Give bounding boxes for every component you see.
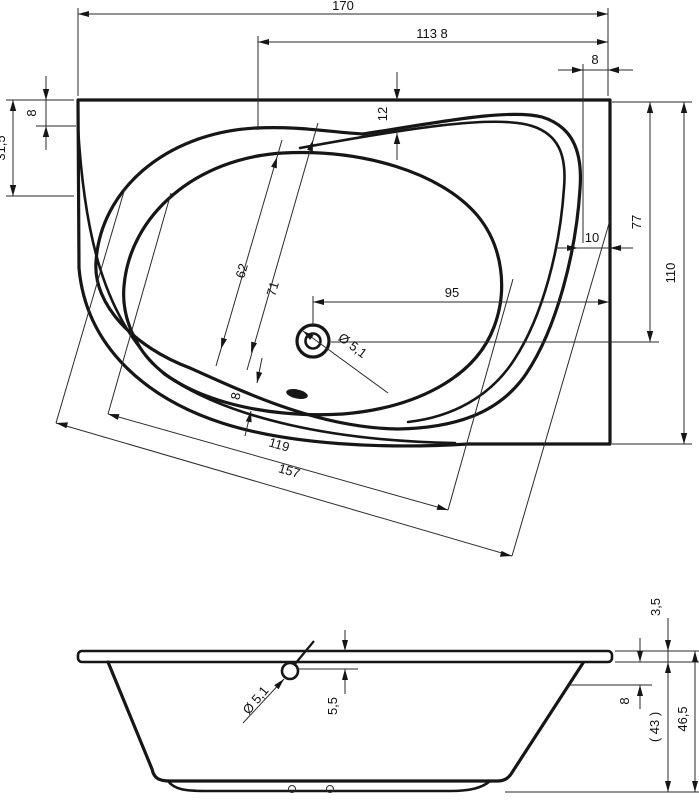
dim-8-top-right: 8: [558, 52, 633, 73]
dim-label-drain-side: Ø 5,1: [240, 683, 272, 717]
dim-5-5: 5,5: [325, 630, 348, 715]
dim-label-71: 71: [263, 280, 281, 298]
dim-label-12: 12: [375, 107, 390, 121]
dim-31-5: 31,5: [0, 100, 16, 196]
dim-110: 110: [663, 102, 687, 444]
dim-8-side: 8: [617, 638, 643, 709]
dim-label-113-8: 113 8: [416, 26, 448, 41]
top-view-extension-lines: [6, 8, 692, 556]
dim-113-8: 113 8: [258, 26, 608, 45]
dim-label-95: 95: [445, 285, 459, 300]
dim-3-5-and-43: 3,5 ( 43 ): [647, 598, 671, 792]
dim-label-3-5: 3,5: [648, 598, 663, 616]
drain-diameter-callout-side: Ø 5,1: [240, 679, 284, 723]
bathing-well-outer-edge: [96, 114, 581, 429]
dim-8-left: 8: [24, 76, 49, 150]
drain-outer-circle: [297, 325, 329, 357]
dim-label-8-side: 8: [617, 697, 632, 704]
drain-diameter-callout-top: Ø 5,1: [303, 330, 388, 393]
rim-flange: [78, 651, 612, 662]
tub-floor-oval: [124, 153, 502, 415]
dim-label-31-5: 31,5: [0, 135, 8, 160]
top-view: 170 113 8 8 8: [0, 0, 692, 557]
dim-77: 77: [629, 102, 653, 342]
dim-label-10: 10: [585, 230, 599, 245]
dim-label-8-mid: 8: [228, 391, 244, 401]
dim-10: 10: [556, 230, 633, 251]
dim-label-77: 77: [629, 215, 644, 229]
technical-drawing-canvas: 170 113 8 8 8: [0, 0, 699, 800]
dim-170: 170: [78, 0, 608, 17]
bathtub-drawing: 170 113 8 8 8: [0, 0, 699, 800]
dim-label-110: 110: [663, 263, 678, 284]
dim-label-170: 170: [332, 0, 354, 13]
dim-label-5-5: 5,5: [325, 697, 340, 715]
drain-axis-line: [295, 641, 314, 664]
dim-label-drain-top: Ø 5,1: [335, 330, 369, 361]
dim-label-8-left: 8: [24, 109, 39, 116]
overflow-mark: [285, 387, 308, 400]
dim-46-5: 46,5: [675, 651, 698, 792]
drain-side-circle: [282, 663, 298, 679]
dim-label-8-top-right: 8: [591, 52, 598, 67]
dim-label-43: ( 43 ): [647, 712, 662, 742]
tub-footprint-outline: [78, 100, 610, 446]
dim-label-46-5: 46,5: [675, 706, 690, 731]
dim-62: 62: [216, 140, 282, 366]
dim-12: 12: [375, 72, 400, 160]
dim-label-62: 62: [232, 262, 250, 280]
dim-label-157: 157: [277, 460, 302, 480]
side-view: Ø 5,1 5,5 3,5 ( 43 ): [78, 598, 699, 793]
